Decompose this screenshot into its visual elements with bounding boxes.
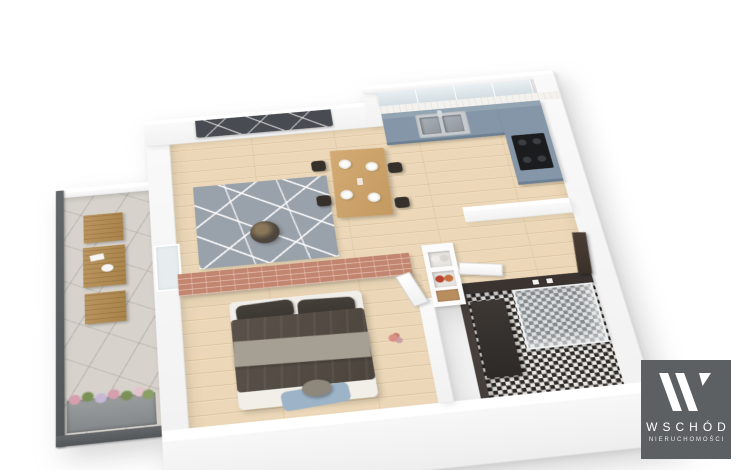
logo-subtitle: NIERUCHOMOŚCI — [647, 437, 725, 443]
dining-stool — [311, 160, 327, 171]
plate-icon — [367, 192, 381, 202]
flower-icon — [95, 393, 107, 404]
floorplan-page: WSCHÓD NIERUCHOMOŚCI — [0, 0, 754, 470]
book-on-table — [90, 253, 105, 262]
bathroom-door-open — [459, 262, 503, 276]
flower-icon — [121, 390, 133, 401]
apartment-plan — [56, 69, 688, 470]
plate-icon — [338, 159, 351, 169]
floorplan-scene — [56, 69, 688, 470]
table-centerpiece — [357, 178, 364, 185]
flower-icon — [142, 389, 154, 400]
plate-on-table — [101, 264, 113, 273]
monogram-triangle — [699, 373, 711, 386]
picture-frame-icon — [532, 280, 539, 285]
walk-in-shower — [512, 282, 609, 350]
picture-frame-icon — [546, 278, 553, 283]
dining-table — [330, 148, 394, 218]
balcony-chair — [85, 290, 127, 324]
sink-basin — [419, 116, 442, 135]
plate-icon — [365, 162, 378, 172]
plate-icon — [340, 190, 354, 200]
towel-roll — [444, 274, 454, 282]
balcony-chair — [83, 212, 123, 243]
kitchen-sink — [415, 111, 471, 139]
dining-stool — [316, 195, 332, 207]
flower-icon — [108, 389, 120, 400]
agency-logo: WSCHÓD NIERUCHOMOŚCI — [641, 360, 731, 459]
flower-icon — [69, 394, 81, 405]
balcony-railing-west — [56, 190, 65, 447]
shelf-drawer — [436, 289, 460, 302]
shelf-cubby — [432, 270, 457, 288]
sink-basin — [442, 114, 465, 132]
towel-roll — [439, 254, 449, 262]
flower-icon — [82, 391, 94, 402]
balcony-table — [83, 244, 126, 288]
dining-stool — [387, 162, 403, 173]
w-monogram-icon — [661, 373, 711, 411]
shelf-cubby — [428, 250, 453, 267]
logo-title: WSCHÓD — [641, 420, 731, 434]
dining-stool — [394, 196, 410, 208]
